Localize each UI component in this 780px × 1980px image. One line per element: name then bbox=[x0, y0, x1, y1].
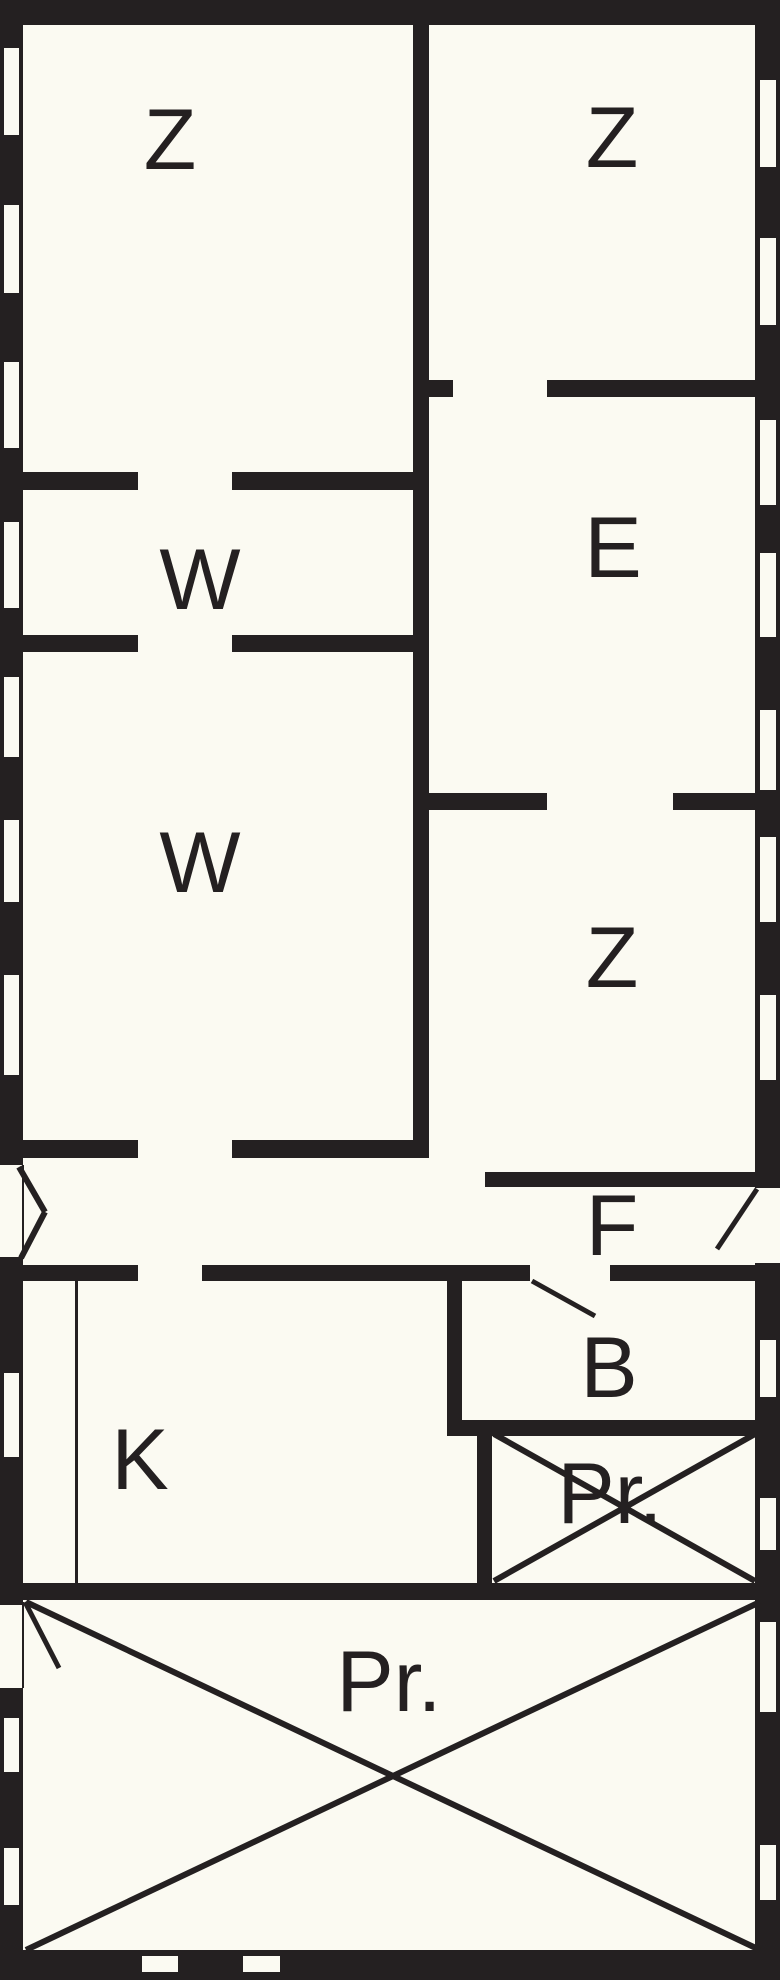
wall-z2-bottom-stub bbox=[429, 380, 453, 397]
window-right-10 bbox=[760, 1622, 776, 1712]
window-right-7 bbox=[760, 995, 776, 1080]
wall-e-bottom-left bbox=[429, 793, 547, 810]
wall-w1-bottom-left bbox=[23, 635, 138, 652]
wall-z1-z2-divider bbox=[413, 23, 429, 1158]
window-left-9 bbox=[4, 1718, 19, 1772]
room-label-pr-large: Pr. bbox=[336, 1634, 441, 1730]
pr-door-opening-line bbox=[22, 1602, 24, 1688]
wall-pr-small-left bbox=[477, 1420, 492, 1600]
window-right-5 bbox=[760, 710, 776, 790]
wall-z1-bottom-left bbox=[23, 472, 138, 490]
window-left-1 bbox=[4, 48, 19, 135]
floor-plan: ZZEWWZFBPr.KPr. bbox=[0, 0, 780, 1980]
wall-w2-bottom-right bbox=[232, 1140, 429, 1158]
window-right-9 bbox=[760, 1498, 776, 1550]
wall-e-bottom-right bbox=[673, 793, 757, 810]
wall-z2-bottom-right bbox=[547, 380, 757, 397]
wall-b-left bbox=[447, 1265, 462, 1436]
floor-plan-page: ZZEWWZFBPr.KPr. bbox=[0, 0, 780, 1980]
room-label-pr-small: Pr. bbox=[557, 1446, 662, 1542]
window-left-7 bbox=[4, 975, 19, 1075]
window-left-6 bbox=[4, 820, 19, 902]
wall-b-bottom bbox=[447, 1420, 757, 1436]
wall-w1-bottom-right bbox=[232, 635, 413, 652]
window-right-2 bbox=[760, 238, 776, 325]
room-label-f: F bbox=[586, 1178, 639, 1274]
window-left-10 bbox=[4, 1848, 19, 1905]
window-left-4 bbox=[4, 522, 19, 608]
wall-w2-bottom-left bbox=[23, 1140, 138, 1158]
window-left-8 bbox=[4, 1373, 19, 1457]
room-label-k: K bbox=[111, 1412, 168, 1508]
window-right-3 bbox=[760, 420, 776, 505]
window-right-8 bbox=[760, 1340, 776, 1397]
window-right-11 bbox=[760, 1845, 776, 1900]
window-left-2 bbox=[4, 205, 19, 293]
window-right-6 bbox=[760, 837, 776, 922]
room-label-e: E bbox=[584, 500, 641, 596]
window-bottom-2 bbox=[243, 1956, 280, 1972]
outer-wall-top bbox=[0, 0, 780, 25]
window-right-1 bbox=[760, 80, 776, 167]
wall-hall-bottom-mid bbox=[202, 1265, 530, 1281]
room-label-z3: Z bbox=[586, 910, 639, 1006]
room-label-b: B bbox=[580, 1320, 637, 1416]
wall-hall-bottom-left bbox=[18, 1265, 138, 1281]
window-left-5 bbox=[4, 677, 19, 757]
window-bottom-1 bbox=[142, 1956, 178, 1972]
room-label-w2: W bbox=[159, 815, 240, 911]
outer-wall-bottom bbox=[0, 1950, 780, 1980]
room-label-z1: Z bbox=[144, 92, 197, 188]
room-label-z2: Z bbox=[586, 90, 639, 186]
room-label-w1: W bbox=[159, 532, 240, 628]
window-right-4 bbox=[760, 553, 776, 637]
window-left-3 bbox=[4, 362, 19, 448]
wall-k-bottom bbox=[23, 1583, 780, 1600]
kitchen-divider-line bbox=[75, 1281, 78, 1583]
wall-z1-bottom-right bbox=[232, 472, 413, 490]
